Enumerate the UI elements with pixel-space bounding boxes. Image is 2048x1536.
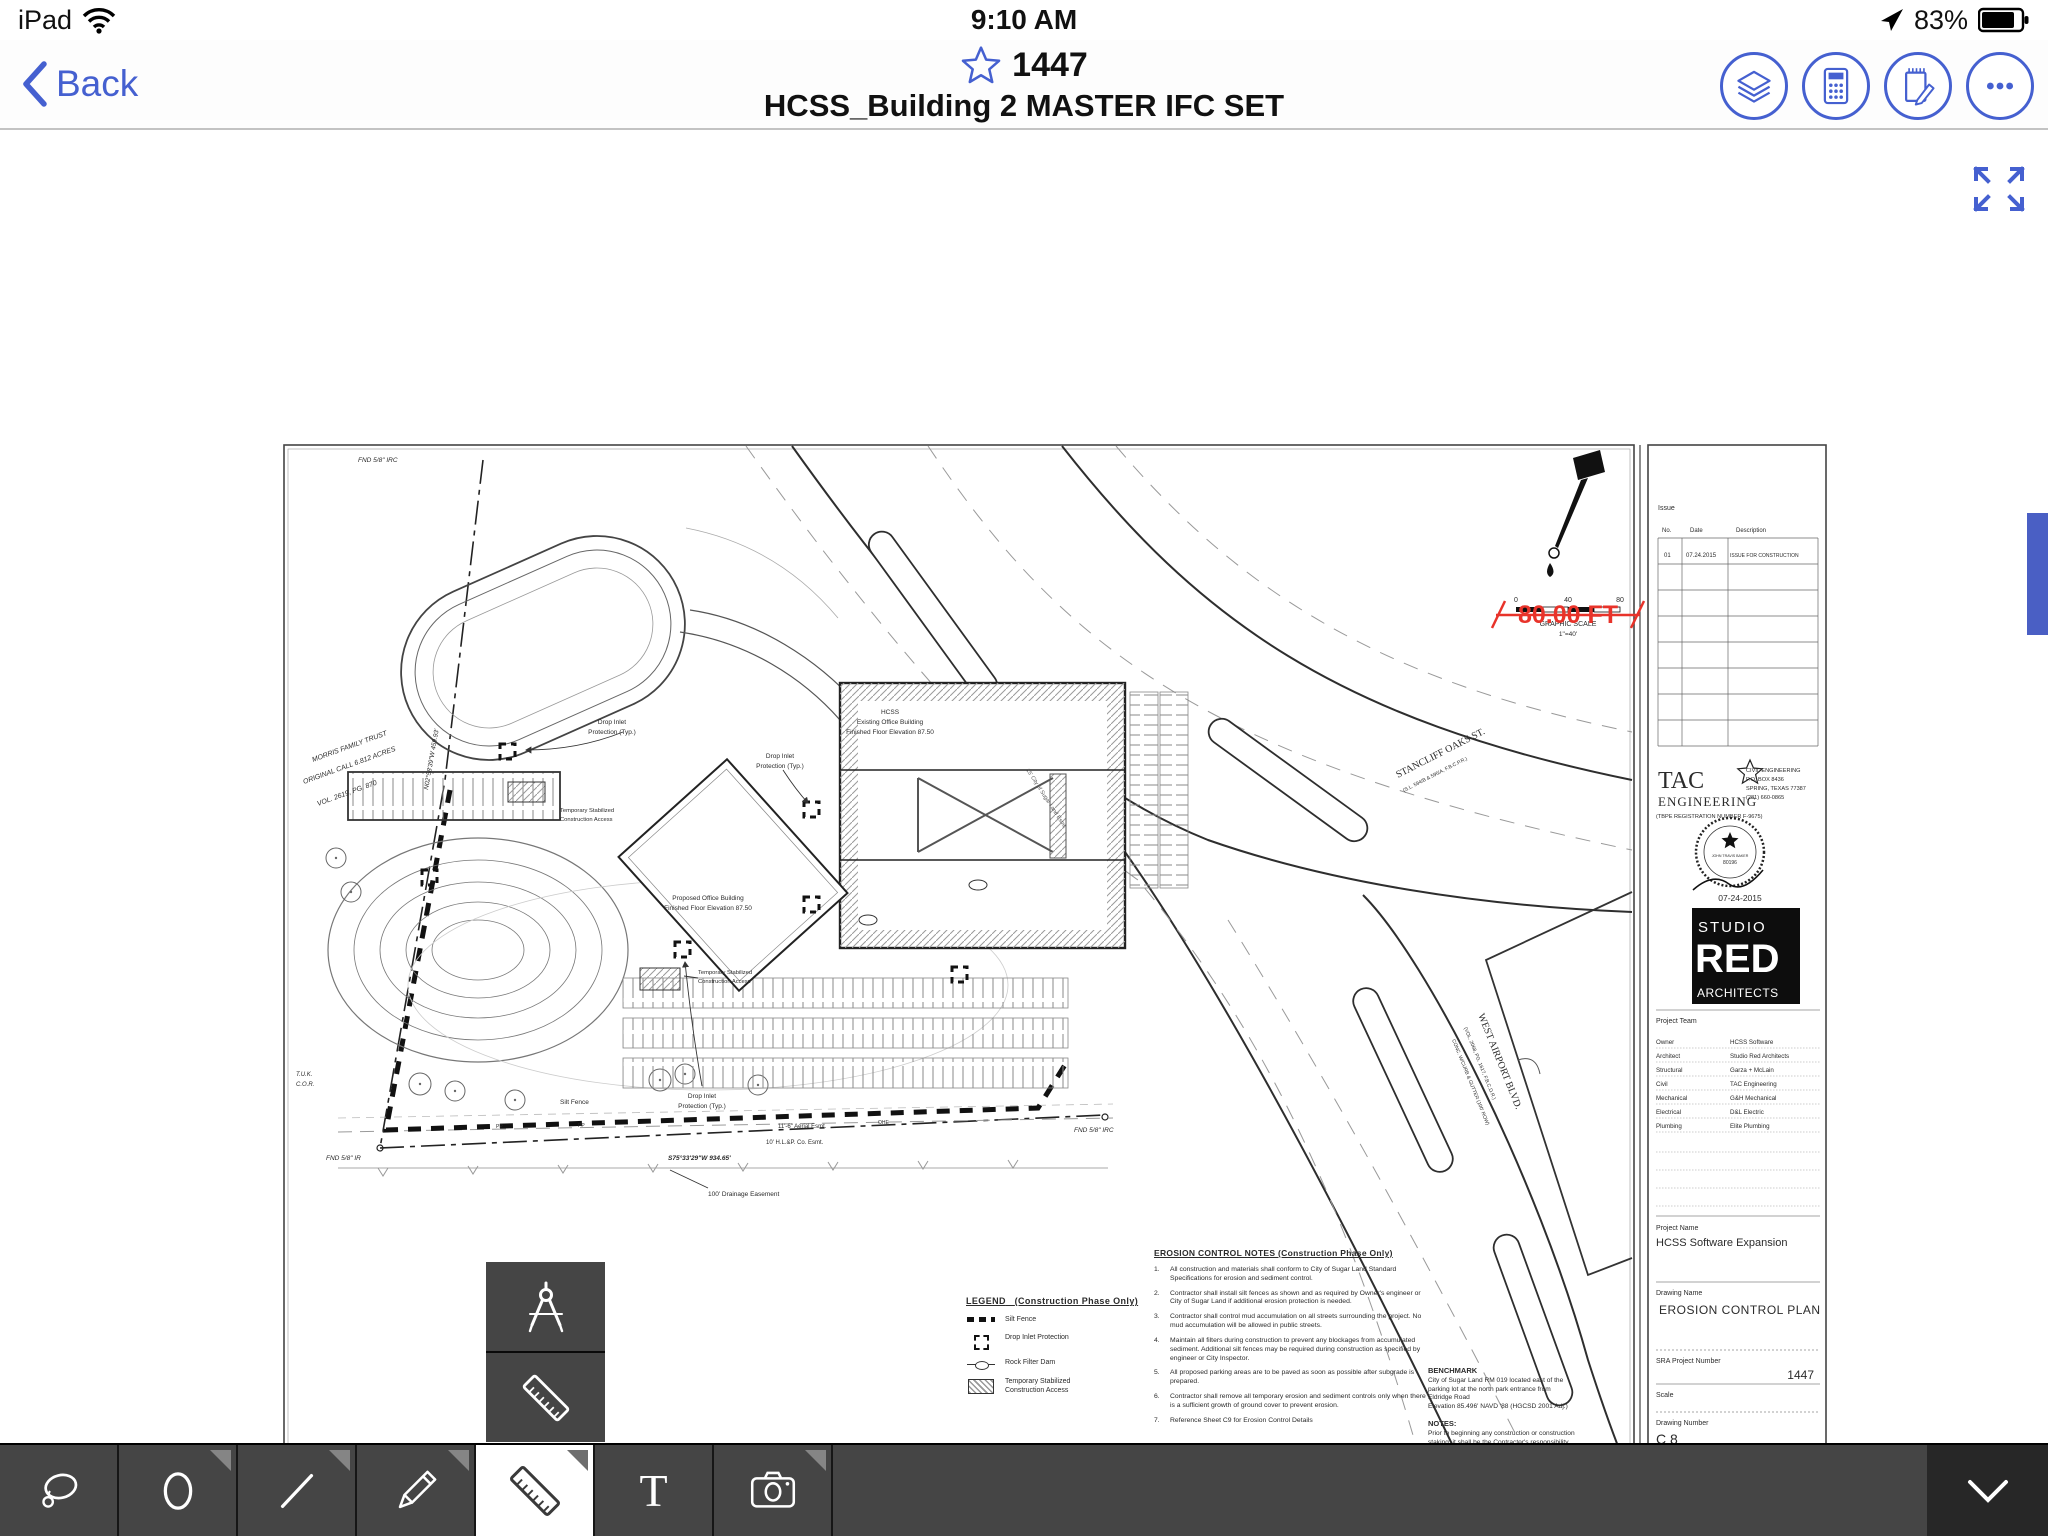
team-role-civil: Civil xyxy=(1656,1081,1668,1088)
line-icon xyxy=(269,1463,325,1519)
expand-icon xyxy=(1972,165,2026,213)
tsa-label-2b: Construction Access xyxy=(698,979,751,985)
issue-row-no: 01 xyxy=(1664,553,1671,559)
ruler-icon-active xyxy=(507,1463,563,1519)
seal-date: 07-24-2015 xyxy=(1718,893,1762,903)
project-name-value: HCSS Software Expansion xyxy=(1656,1237,1787,1249)
legend-item-inlet: Drop Inlet Protection xyxy=(1005,1334,1069,1343)
drop-inlet-label-2a: Drop Inlet xyxy=(766,753,794,760)
toolbar-spacer xyxy=(833,1445,1927,1536)
drop-inlet-label-1b: Protection (Typ.) xyxy=(588,729,636,736)
viewer-canvas[interactable]: FND 5/8" IRC MORRIS FAMILY TRUST ORIGINA… xyxy=(0,130,2048,1443)
team-val-civil: TAC Engineering xyxy=(1730,1081,1777,1088)
layers-button[interactable] xyxy=(1720,52,1788,120)
issue-col-date: Date xyxy=(1690,528,1703,534)
tac-registration: (TBPE REGISTRATION NUMBER F-9675) xyxy=(1656,814,1763,820)
text-tool-glyph: T xyxy=(639,1464,667,1517)
scale-label: Scale xyxy=(1656,1392,1674,1399)
legend-item-silt: Silt Fence xyxy=(1005,1316,1036,1325)
aerial-esmt-label: 11'-6" Aerial Esmt. xyxy=(778,1124,827,1130)
nav-bar: Back 1447 HCSS_Building 2 MASTER IFC SET xyxy=(0,40,2048,130)
app-window: iPad 9:10 AM 83% xyxy=(0,0,2048,1536)
tac-info-4: (281) 660-0865 xyxy=(1746,795,1784,801)
legend-item-rfd: Rock Filter Dam xyxy=(1005,1359,1055,1368)
silt-fence-symbol xyxy=(967,1317,995,1322)
clock: 9:10 AM xyxy=(0,4,2048,36)
team-role-structural: Structural xyxy=(1656,1067,1682,1074)
drop-inlet-label-2b: Protection (Typ.) xyxy=(756,763,804,770)
pencil-icon xyxy=(388,1463,444,1519)
note-text: Contractor shall control mud accumulatio… xyxy=(1170,1313,1426,1331)
cor-label: C.O.R. xyxy=(296,1082,314,1088)
ellipse-icon xyxy=(150,1463,206,1519)
hcss-bldg-label-1: HCSS xyxy=(881,709,900,716)
benchmark-notes-title: NOTES: xyxy=(1428,1419,1633,1428)
team-val-plumbing: Elite Plumbing xyxy=(1730,1123,1770,1130)
fullscreen-button[interactable] xyxy=(1972,165,2026,218)
team-label: Project Team xyxy=(1656,1018,1697,1025)
proposed-bldg-label-1: Proposed Office Building xyxy=(672,895,744,902)
ellipse-tool-button[interactable] xyxy=(119,1445,238,1536)
studio-red-logo: STUDIO RED ARCHITECTS xyxy=(1692,908,1800,1004)
construction-access-symbol xyxy=(968,1379,994,1394)
tool-options-corner xyxy=(210,1450,231,1471)
proposed-bldg-label-2: Finished Floor Elevation 87.50 xyxy=(664,905,752,912)
favorite-star-icon[interactable] xyxy=(960,45,1002,86)
measurement-annotation[interactable]: 80.00 FT xyxy=(1492,601,1644,629)
issue-label: Issue xyxy=(1658,505,1675,512)
lasso-icon xyxy=(31,1463,87,1519)
tool-options-corner xyxy=(567,1450,588,1471)
ellipsis-icon xyxy=(1977,63,2023,109)
hlp-esmt-label: 10' H.L.&P. Co. Esmt. xyxy=(766,1140,824,1146)
team-val-electrical: D&L Electric xyxy=(1730,1109,1764,1116)
ruler-icon xyxy=(520,1372,572,1424)
status-bar: iPad 9:10 AM 83% xyxy=(0,0,2048,40)
camera-icon xyxy=(745,1463,801,1519)
benchmark-note-line: Prior to beginning any construction or c… xyxy=(1428,1430,1633,1439)
scrollbar-thumb[interactable] xyxy=(2027,513,2048,635)
line-tool-button[interactable] xyxy=(238,1445,357,1536)
note-text: All proposed parking areas are to be pav… xyxy=(1170,1369,1426,1387)
tool-options-corner xyxy=(805,1450,826,1471)
drop-inlet-label-3b: Protection (Typ.) xyxy=(678,1103,726,1110)
drawing-number-label: Drawing Number xyxy=(1656,1420,1709,1427)
team-val-owner: HCSS Software xyxy=(1730,1039,1774,1046)
document-title: HCSS_Building 2 MASTER IFC SET xyxy=(764,88,1284,124)
benchmark-line: Elevation 85.496' NAVD '88 (HGCSD 2001 A… xyxy=(1428,1403,1633,1412)
drawing-name-value: EROSION CONTROL PLAN xyxy=(1659,1303,1821,1317)
tac-name-1: TAC xyxy=(1658,768,1704,794)
studio-red-2: RED xyxy=(1695,937,1779,981)
erosion-notes-title: EROSION CONTROL NOTES (Construction Phas… xyxy=(1154,1248,1426,1258)
note-text: Reference Sheet C9 for Erosion Control D… xyxy=(1170,1417,1313,1426)
hcss-bldg-label-3: Finished Floor Elevation 87.50 xyxy=(846,729,934,736)
ruler-tool-button[interactable] xyxy=(476,1445,595,1536)
issue-col-desc: Description xyxy=(1736,528,1766,534)
note-num: 6. xyxy=(1154,1393,1164,1411)
erosion-notes-block: EROSION CONTROL NOTES (Construction Phas… xyxy=(1154,1248,1426,1432)
legend-block: LEGEND (Construction Phase Only) Silt Fe… xyxy=(966,1296,1141,1404)
team-role-plumbing: Plumbing xyxy=(1656,1123,1682,1130)
drainage-esmt-label: 100' Drainage Easement xyxy=(708,1191,780,1198)
issue-row-date: 07.24.2015 xyxy=(1686,553,1717,559)
fnd-nw-label: FND 5/8" IRC xyxy=(358,457,398,464)
tsa-label-1a: Temporary Stabilized xyxy=(560,808,614,814)
note-text: Contractor shall install silt fences as … xyxy=(1170,1290,1426,1308)
benchmark-line: City of Sugar Land RM 019 located east o… xyxy=(1428,1377,1633,1386)
ohe-label: OHE xyxy=(878,1120,890,1126)
ruler-tool-popup xyxy=(486,1262,605,1442)
pe-seal: JOHN TRAVIS BAKER 80196 07-24-2015 xyxy=(1693,818,1764,903)
tac-info-2: P.O. BOX 8436 xyxy=(1746,777,1784,783)
ruler-subtool-button[interactable] xyxy=(486,1353,605,1442)
rock-filter-dam-symbol xyxy=(967,1360,995,1369)
collapse-toolbar-button[interactable] xyxy=(1927,1445,2048,1536)
team-role-electrical: Electrical xyxy=(1656,1109,1681,1116)
note-num: 1. xyxy=(1154,1266,1164,1284)
note-num: 4. xyxy=(1154,1337,1164,1363)
south-bearing-label: S75°33'29"W 934.65' xyxy=(668,1154,731,1162)
scale-ratio-label: 1"=40' xyxy=(1559,631,1577,638)
silt-fence-label: Silt Fence xyxy=(560,1099,589,1106)
calculator-button[interactable] xyxy=(1802,52,1870,120)
chevron-down-icon xyxy=(1966,1478,2010,1504)
seal-number: 80196 xyxy=(1723,860,1737,866)
note-text: All construction and materials shall con… xyxy=(1170,1266,1426,1284)
note-text: Maintain all filters during construction… xyxy=(1170,1337,1426,1363)
tac-info-1: CIVIL ENGINEERING xyxy=(1746,768,1801,774)
team-role-architect: Architect xyxy=(1656,1053,1680,1060)
fnd-sw-label: FND 5/8" IR xyxy=(326,1155,361,1162)
note-text: Contractor shall remove all temporary er… xyxy=(1170,1393,1426,1411)
tool-options-corner xyxy=(448,1450,469,1471)
team-val-structural: Garza + McLain xyxy=(1730,1067,1774,1074)
lasso-tool-button[interactable] xyxy=(0,1445,119,1536)
drop-inlet-label-1a: Drop Inlet xyxy=(598,719,626,726)
drawing-name-label: Drawing Name xyxy=(1656,1290,1702,1297)
pp-label-1: PP xyxy=(496,1124,503,1130)
layers-icon xyxy=(1731,63,1777,109)
benchmark-line: parking lot at the north park entrance f… xyxy=(1428,1386,1633,1395)
photo-tool-button[interactable] xyxy=(714,1445,833,1536)
team-val-architect: Studio Red Architects xyxy=(1730,1053,1789,1060)
benchmark-line: Eldridge Road xyxy=(1428,1394,1633,1403)
tac-info-3: SPRING, TEXAS 77387 xyxy=(1746,786,1806,792)
drop-inlet-label-3a: Drop Inlet xyxy=(688,1093,716,1100)
note-num: 2. xyxy=(1154,1290,1164,1308)
team-val-mechanical: G&H Mechanical xyxy=(1730,1095,1776,1102)
text-tool-button[interactable]: T xyxy=(595,1445,714,1536)
pp-label-2: PP xyxy=(578,1123,585,1129)
calculator-icon xyxy=(1813,63,1859,109)
tac-name-2: ENGINEERING xyxy=(1658,794,1757,809)
tool-options-corner xyxy=(329,1450,350,1471)
issue-col-no: No. xyxy=(1662,528,1672,534)
issue-row-desc: ISSUE FOR CONSTRUCTION xyxy=(1730,553,1799,559)
team-role-mechanical: Mechanical xyxy=(1656,1095,1687,1102)
measurement-value: 80.00 FT xyxy=(1518,601,1618,629)
legend-title: LEGEND xyxy=(966,1296,1006,1306)
note-num: 5. xyxy=(1154,1369,1164,1387)
more-button[interactable] xyxy=(1966,52,2034,120)
note-num: 7. xyxy=(1154,1417,1164,1426)
fnd-se-label: FND 5/8" IRC xyxy=(1074,1127,1114,1134)
hcss-bldg-label-2: Existing Office Building xyxy=(857,719,924,726)
legend-subtitle: (Construction Phase Only) xyxy=(1015,1296,1139,1306)
compass-icon xyxy=(522,1281,570,1333)
team-role-owner: Owner xyxy=(1656,1039,1674,1046)
benchmark-title: BENCHMARK xyxy=(1428,1366,1633,1375)
annotation-toolbar: T xyxy=(0,1443,2048,1536)
note-num: 3. xyxy=(1154,1313,1164,1331)
sheet-number: 1447 xyxy=(1012,46,1088,85)
tuk-label: T.U.K. xyxy=(296,1072,312,1078)
studio-red-3: ARCHITECTS xyxy=(1697,986,1779,1000)
sra-number-value: 1447 xyxy=(1787,1368,1814,1382)
legend-item-tsa: Temporary Stabilized Construction Access xyxy=(1005,1378,1095,1396)
drop-inlet-symbol xyxy=(974,1335,989,1350)
markup-icon xyxy=(1895,63,1941,109)
sra-number-label: SRA Project Number xyxy=(1656,1358,1721,1365)
studio-red-1: STUDIO xyxy=(1698,919,1767,936)
tsa-label-1b: Construction Access xyxy=(560,817,613,823)
project-name-label: Project Name xyxy=(1656,1225,1699,1232)
seal-name: JOHN TRAVIS BAKER xyxy=(1712,854,1749,858)
markup-button[interactable] xyxy=(1884,52,1952,120)
compass-tool-button[interactable] xyxy=(486,1262,605,1351)
tsa-label-2a: Temporary Stabilized xyxy=(698,970,752,976)
pencil-tool-button[interactable] xyxy=(357,1445,476,1536)
